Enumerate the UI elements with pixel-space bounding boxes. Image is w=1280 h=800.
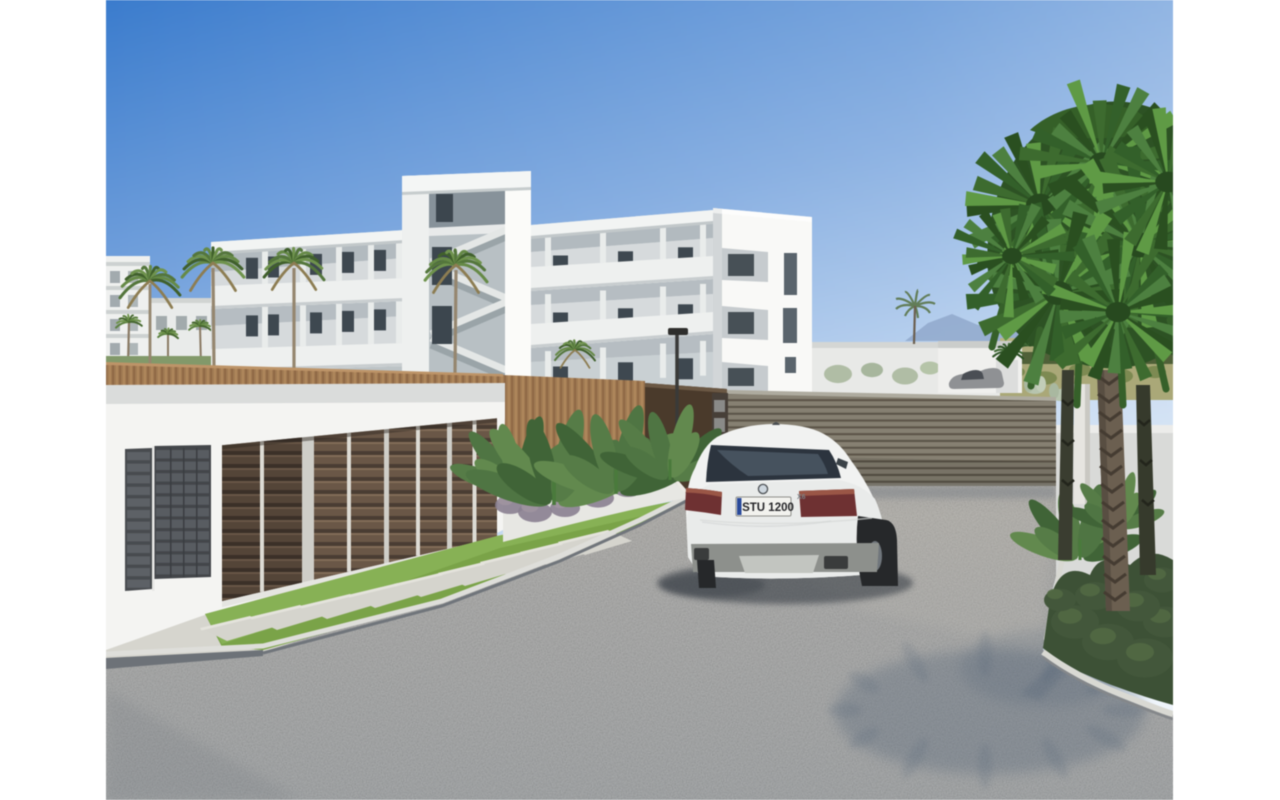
svg-text:X6: X6 xyxy=(797,494,806,501)
svg-text:STU 1200: STU 1200 xyxy=(742,502,794,514)
